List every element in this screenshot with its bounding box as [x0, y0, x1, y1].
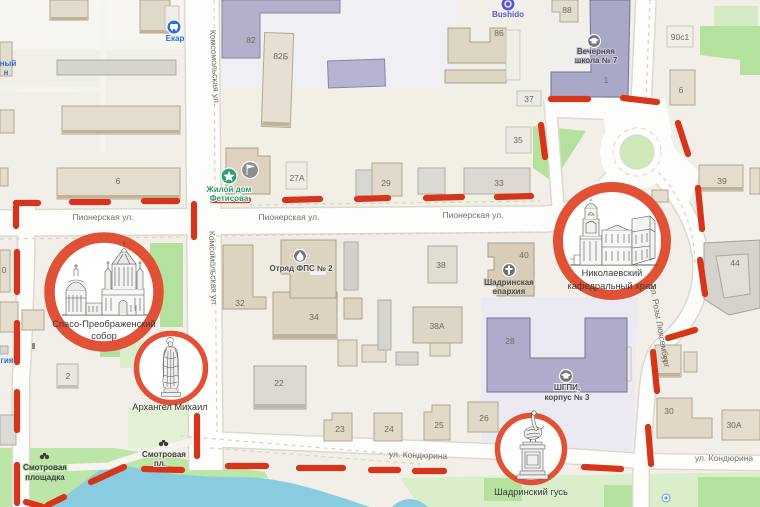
svg-text:ул. Кондюрина: ул. Кондюрина	[389, 449, 448, 461]
svg-text:кафедральный храм: кафедральный храм	[567, 281, 656, 291]
svg-text:Пионерская ул.: Пионерская ул.	[259, 212, 320, 222]
svg-text:Спасо-Преображенский: Спасо-Преображенский	[52, 319, 155, 329]
svg-text:82: 82	[246, 35, 256, 45]
svg-text:6: 6	[679, 85, 684, 95]
svg-text:Екар: Екар	[166, 34, 185, 43]
svg-text:34: 34	[309, 312, 319, 322]
svg-text:26: 26	[479, 413, 489, 423]
svg-text:ный: ный	[0, 59, 16, 68]
svg-text:23: 23	[335, 424, 345, 434]
svg-text:гия: гия	[1, 356, 14, 365]
svg-text:39: 39	[717, 176, 727, 186]
svg-text:38: 38	[436, 260, 446, 270]
svg-text:корпус № 3: корпус № 3	[544, 393, 590, 402]
svg-text:Вечерняя: Вечерняя	[577, 47, 616, 56]
svg-text:29: 29	[381, 178, 391, 188]
svg-text:Пионерская ул.: Пионерская ул.	[73, 212, 134, 222]
svg-text:32: 32	[235, 298, 245, 308]
svg-text:30: 30	[664, 406, 674, 416]
svg-text:епархия: епархия	[493, 287, 526, 296]
svg-text:Архангел Михаил: Архангел Михаил	[132, 402, 207, 412]
svg-text:0: 0	[2, 265, 7, 275]
svg-text:27А: 27А	[289, 173, 304, 183]
svg-text:Шадринский гусь: Шадринский гусь	[494, 487, 568, 497]
svg-text:86: 86	[494, 28, 504, 38]
svg-text:Bushido: Bushido	[492, 10, 524, 19]
svg-text:Николаевский: Николаевский	[582, 268, 643, 278]
svg-text:Фетисова: Фетисова	[210, 194, 249, 203]
svg-text:88: 88	[562, 5, 572, 15]
svg-text:40: 40	[519, 250, 529, 260]
svg-text:22: 22	[274, 378, 284, 388]
svg-text:33: 33	[494, 178, 504, 188]
svg-text:Отряд ФПС № 2: Отряд ФПС № 2	[269, 264, 333, 273]
svg-text:24: 24	[384, 424, 394, 434]
svg-text:Жилой дом: Жилой дом	[206, 185, 252, 194]
svg-text:Пионерская ул.: Пионерская ул.	[443, 210, 504, 220]
svg-text:6: 6	[116, 176, 121, 186]
svg-text:ШГПИ,: ШГПИ,	[554, 383, 580, 392]
svg-text:38А: 38А	[429, 321, 444, 331]
svg-text:площадка: площадка	[25, 473, 65, 482]
svg-text:ул. Кондюрина: ул. Кондюрина	[695, 453, 754, 463]
svg-text:2: 2	[66, 371, 71, 381]
svg-text:30А: 30А	[726, 420, 741, 430]
svg-text:44: 44	[730, 258, 740, 268]
svg-text:35: 35	[513, 135, 523, 145]
svg-text:Шадринская: Шадринская	[484, 278, 534, 287]
svg-text:1: 1	[604, 75, 609, 85]
svg-text:Смотровая: Смотровая	[142, 450, 186, 459]
svg-text:25: 25	[434, 420, 444, 430]
svg-text:Смотровая: Смотровая	[23, 463, 67, 472]
svg-text:пл.: пл.	[154, 459, 166, 468]
svg-text:90с1: 90с1	[671, 32, 690, 42]
svg-text:школа № 7: школа № 7	[575, 56, 618, 65]
svg-text:н: н	[4, 68, 9, 77]
svg-text:собор: собор	[91, 331, 117, 341]
svg-text:82Б: 82Б	[273, 51, 289, 62]
svg-text:37: 37	[524, 94, 534, 104]
svg-text:28: 28	[505, 336, 515, 346]
